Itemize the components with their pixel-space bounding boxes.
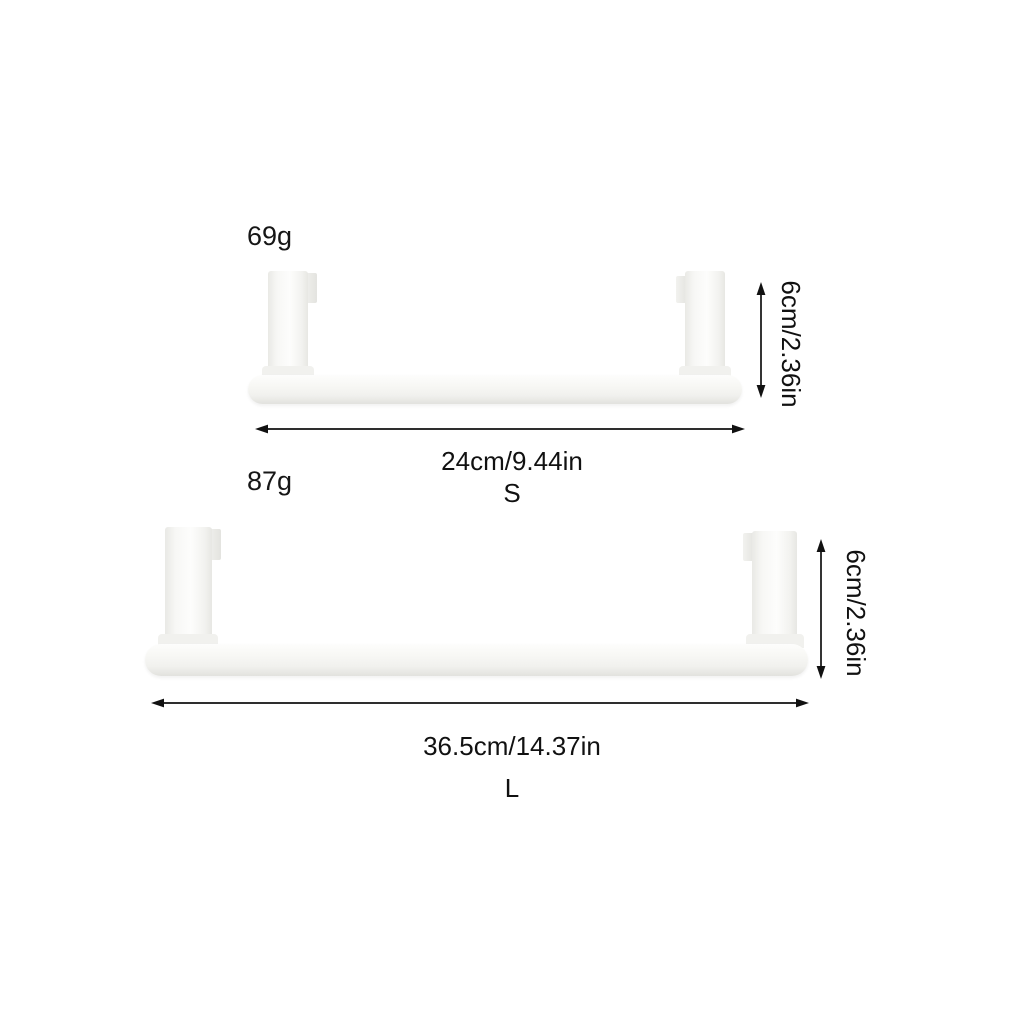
towel-bar-l-right-hook-post xyxy=(752,531,797,649)
length-dimension-labels-s: 24cm/9.44in S xyxy=(362,446,662,508)
length-dimension-arrow-l xyxy=(150,696,810,710)
height-dimension-arrow-s xyxy=(754,281,768,399)
towel-bar-s-right-hook-post xyxy=(685,271,725,381)
height-label-s: 6cm/2.36in xyxy=(776,269,806,419)
towel-bar-s-left-hook-post xyxy=(268,271,308,381)
length-label-l: 36.5cm/14.37in xyxy=(362,731,662,761)
size-label-l: L xyxy=(362,773,662,803)
height-dimension-arrow-l xyxy=(814,538,828,680)
height-label-l: 6cm/2.36in xyxy=(841,538,871,688)
length-dimension-arrow-s xyxy=(254,422,746,436)
length-dimension-labels-l: 36.5cm/14.37in L xyxy=(362,731,662,803)
towel-bar-l-rail xyxy=(145,644,808,676)
weight-label-l: 87g xyxy=(247,466,292,497)
towel-bar-l-left-hook-post xyxy=(165,527,212,649)
product-dimension-diagram: 69g 24cm/9.44in S 6cm/2.36in 87g xyxy=(0,0,1020,1020)
towel-bar-s-rail xyxy=(248,375,742,404)
weight-label-s: 69g xyxy=(247,221,292,252)
size-label-s: S xyxy=(362,478,662,508)
length-label-s: 24cm/9.44in xyxy=(362,446,662,476)
